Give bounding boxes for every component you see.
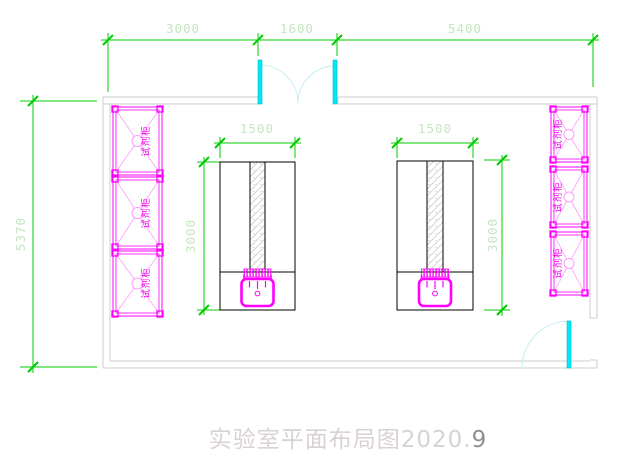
dimension-lines <box>20 33 599 373</box>
drawing-title: 实验室平面布局图2020.9 <box>188 420 508 454</box>
floor-plan-canvas: 3000 1600 5400 5370 1500 1500 3000 3000 … <box>0 0 619 469</box>
room-walls <box>103 97 597 368</box>
drawing-title-main: 实验室平面布局图2020. <box>209 427 472 453</box>
door-leaf-left <box>258 60 262 104</box>
cabinet-knob <box>564 130 574 140</box>
cabinet-left-3 <box>112 250 163 317</box>
door-leaf-right <box>333 60 337 104</box>
bench-center-shelf-hatch <box>250 162 265 272</box>
cabinet-right-2 <box>550 166 588 228</box>
cabinet-left-1 <box>112 106 163 176</box>
cabinets-right <box>550 106 588 296</box>
bench-center-shelf-hatch <box>427 161 443 272</box>
floorplan-drawing <box>0 0 619 469</box>
cabinet-knob <box>132 208 143 219</box>
double-door-top <box>258 60 337 104</box>
door-swing-arc-left <box>260 65 298 103</box>
cabinet-right-1 <box>550 106 588 163</box>
cabinet-right-3 <box>550 231 588 296</box>
cabinet-left-2 <box>112 176 163 250</box>
cabinets-left <box>112 106 163 317</box>
cabinet-knob <box>564 192 574 202</box>
cabinet-knob <box>564 259 574 269</box>
sink-grate <box>422 269 449 277</box>
door-leaf <box>567 321 571 368</box>
door-swing-arc-right <box>298 66 335 103</box>
cabinet-knob <box>132 136 143 147</box>
cabinet-knob <box>132 278 143 289</box>
sink-grate <box>244 269 271 277</box>
drawing-title-accent: 9 <box>472 427 488 453</box>
